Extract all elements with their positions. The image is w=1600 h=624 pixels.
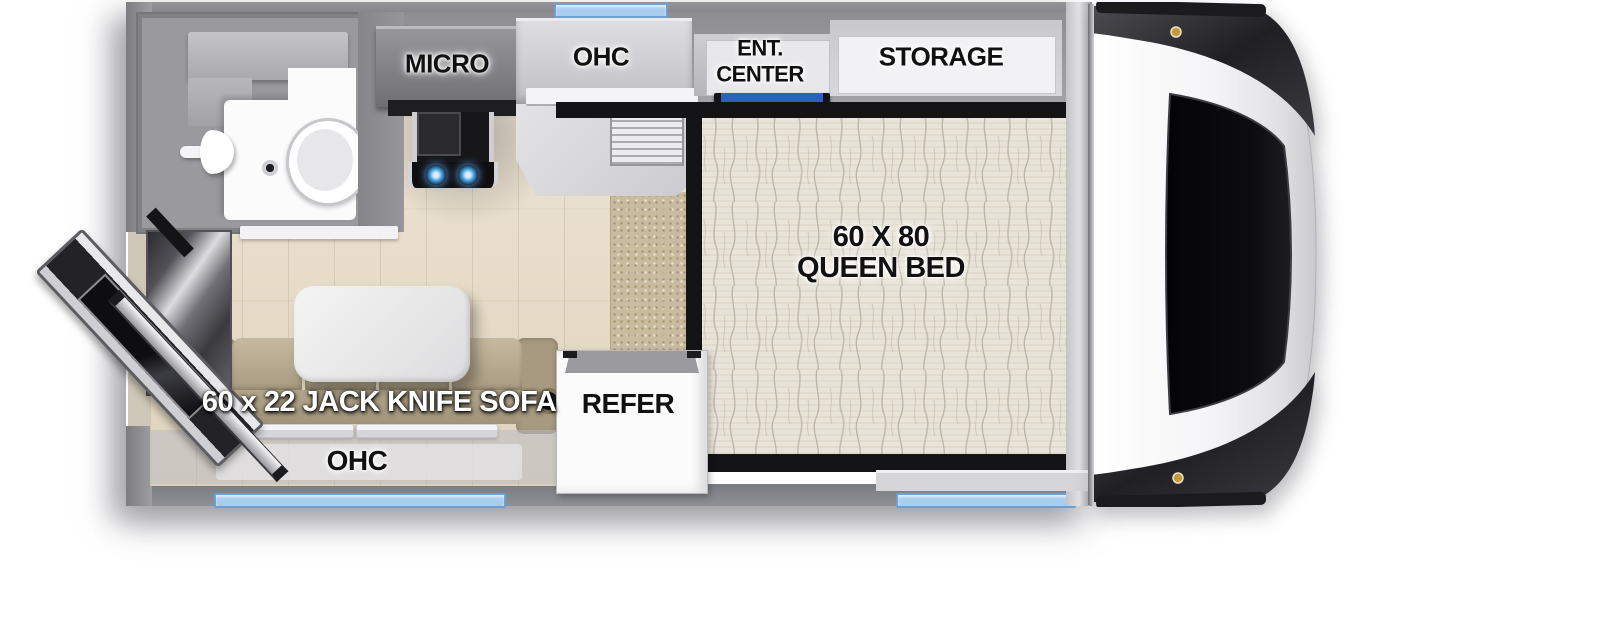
toilet-lid — [297, 129, 353, 191]
refrigerator-hinge — [563, 351, 577, 358]
window-bottom-left — [214, 493, 506, 508]
label-ohc-top: OHC — [573, 42, 629, 73]
label-sofa: 60 x 22 JACK KNIFE SOFA — [202, 386, 556, 418]
refrigerator-top — [565, 351, 699, 373]
clearance-light-icon — [1173, 473, 1183, 483]
mattress-weave — [702, 118, 1066, 454]
label-storage: STORAGE — [879, 42, 1004, 73]
queen-bed-mattress — [702, 118, 1066, 454]
burner-icon — [426, 165, 446, 185]
label-ohc-bottom: OHC — [327, 445, 388, 477]
bathroom-floor-extension — [288, 68, 356, 108]
refrigerator-hinge — [687, 351, 701, 358]
refrigerator — [556, 350, 708, 494]
floorplan-canvas: MICRO OHC ENT. CENTER STORAGE 60 X 80 QU… — [0, 0, 1600, 624]
window-top — [554, 3, 668, 18]
label-micro: MICRO — [405, 49, 489, 80]
burner-icon — [458, 165, 478, 185]
door-window — [77, 274, 217, 420]
dinette-table — [294, 286, 470, 382]
label-refer: REFER — [582, 388, 674, 420]
label-ent-center-line1: ENT. — [737, 36, 783, 61]
windshield — [1166, 94, 1291, 414]
front-wall — [1066, 2, 1090, 506]
label-bed-type: QUEEN BED — [797, 252, 965, 284]
clearance-light-icon — [1171, 27, 1181, 37]
cooktop — [408, 162, 498, 188]
oven-door — [417, 112, 461, 156]
bed-frame — [556, 102, 1090, 118]
label-bed-size: 60 X 80 — [833, 221, 929, 253]
camper-nose-cap — [1088, 2, 1324, 507]
window-bottom-right — [896, 493, 1076, 508]
floor-drain-icon — [262, 160, 278, 176]
nose-seam — [1088, 4, 1094, 505]
label-ent-center-line2: CENTER — [716, 62, 803, 87]
bed-step — [876, 470, 1090, 491]
entry-door — [30, 220, 290, 480]
range-oven — [412, 112, 494, 166]
bathroom — [136, 12, 368, 234]
